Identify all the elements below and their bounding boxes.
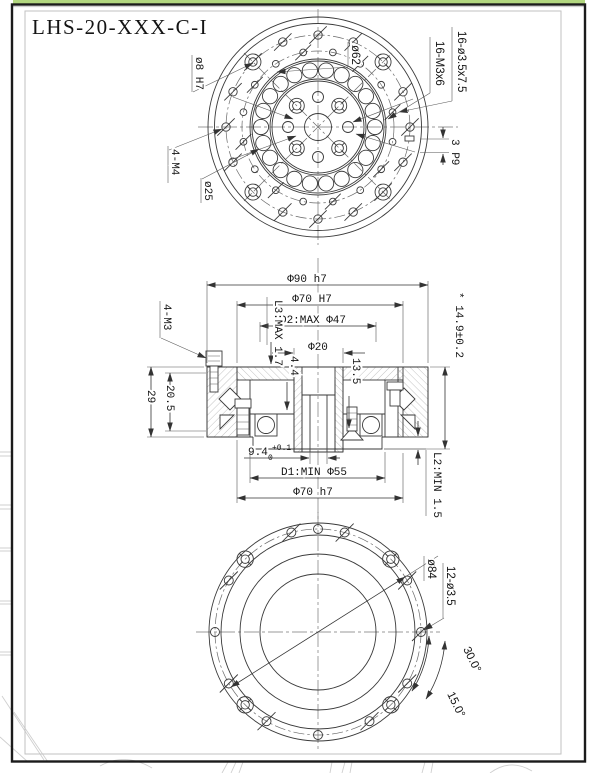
drawing-title: LHS-20-XXX-C-I bbox=[32, 15, 208, 39]
dim-h-13-5: 13.5 bbox=[349, 358, 361, 384]
label-tapped-m3-ring: 16-M3x6 bbox=[433, 41, 445, 86]
drawing-canvas: LHS-20-XXX-C-I bbox=[0, 0, 600, 773]
background-fragments bbox=[0, 452, 532, 773]
label-pin-hole: ø8 H7 bbox=[192, 57, 204, 90]
label-cbore-holes: 16-ø3.5x7.5 bbox=[455, 31, 467, 92]
label-tapped-m4: 4-M4 bbox=[168, 149, 180, 176]
svg-text:0: 0 bbox=[268, 454, 273, 463]
label-holes-3-5: 12-ø3.5 bbox=[444, 566, 456, 606]
svg-text:L2:MIN 1.5: L2:MIN 1.5 bbox=[430, 452, 442, 518]
label-key-width: 3 P9 bbox=[448, 139, 460, 165]
dim-dia-90: Φ90 h7 bbox=[287, 274, 327, 286]
dim-d2-max: D2:MAX Φ47 bbox=[280, 315, 346, 327]
dim-bolt-circle-84: ø84 bbox=[425, 559, 437, 579]
dim-h-29: 29 bbox=[144, 390, 156, 403]
dim-dia-20: Φ20 bbox=[308, 342, 328, 354]
dim-overall-height: * 14.9±0.2 bbox=[452, 292, 464, 358]
svg-text:9.4: 9.4 bbox=[248, 447, 268, 459]
top-view-leaders bbox=[230, 97, 415, 160]
top-view: ø8 H7 4-M4 ø25 ø62 16-ø3.5x7.5 16-M3x6 3… bbox=[168, 9, 467, 245]
label-bolt-circle-62: ø62 bbox=[349, 45, 361, 65]
dim-d1-min: D1:MIN Φ55 bbox=[281, 467, 347, 479]
svg-text:+0.1: +0.1 bbox=[272, 444, 291, 453]
section-view: Φ90 h7 Φ70 H7 D2:MAX Φ47 Φ20 L3:MAX 1.7 … bbox=[144, 258, 464, 520]
dim-dia-70-top: Φ70 H7 bbox=[292, 294, 332, 306]
dim-tapped-m3: 4-M3 bbox=[160, 304, 172, 330]
dim-l3-max: L3:MAX 1.7 bbox=[271, 300, 283, 366]
dim-h-20-5: 20.5 bbox=[163, 385, 175, 411]
dim-w-9-4: 9.4 +0.1 0 bbox=[244, 442, 340, 464]
dim-h-4-4: 4.4 bbox=[287, 356, 299, 376]
cad-drawing-page: LHS-20-XXX-C-I bbox=[0, 0, 600, 773]
label-dia-25: ø25 bbox=[201, 181, 213, 201]
inner-frame bbox=[25, 11, 561, 754]
bottom-view: ø84 12-ø3.5 30.0° 15.0° bbox=[196, 512, 483, 752]
dim-angle-15: 15.0° bbox=[444, 690, 467, 720]
dim-angle-30: 30.0° bbox=[460, 645, 483, 675]
dim-dia-70-bottom: Φ70 h7 bbox=[293, 487, 333, 499]
ball-bearings bbox=[255, 414, 382, 436]
